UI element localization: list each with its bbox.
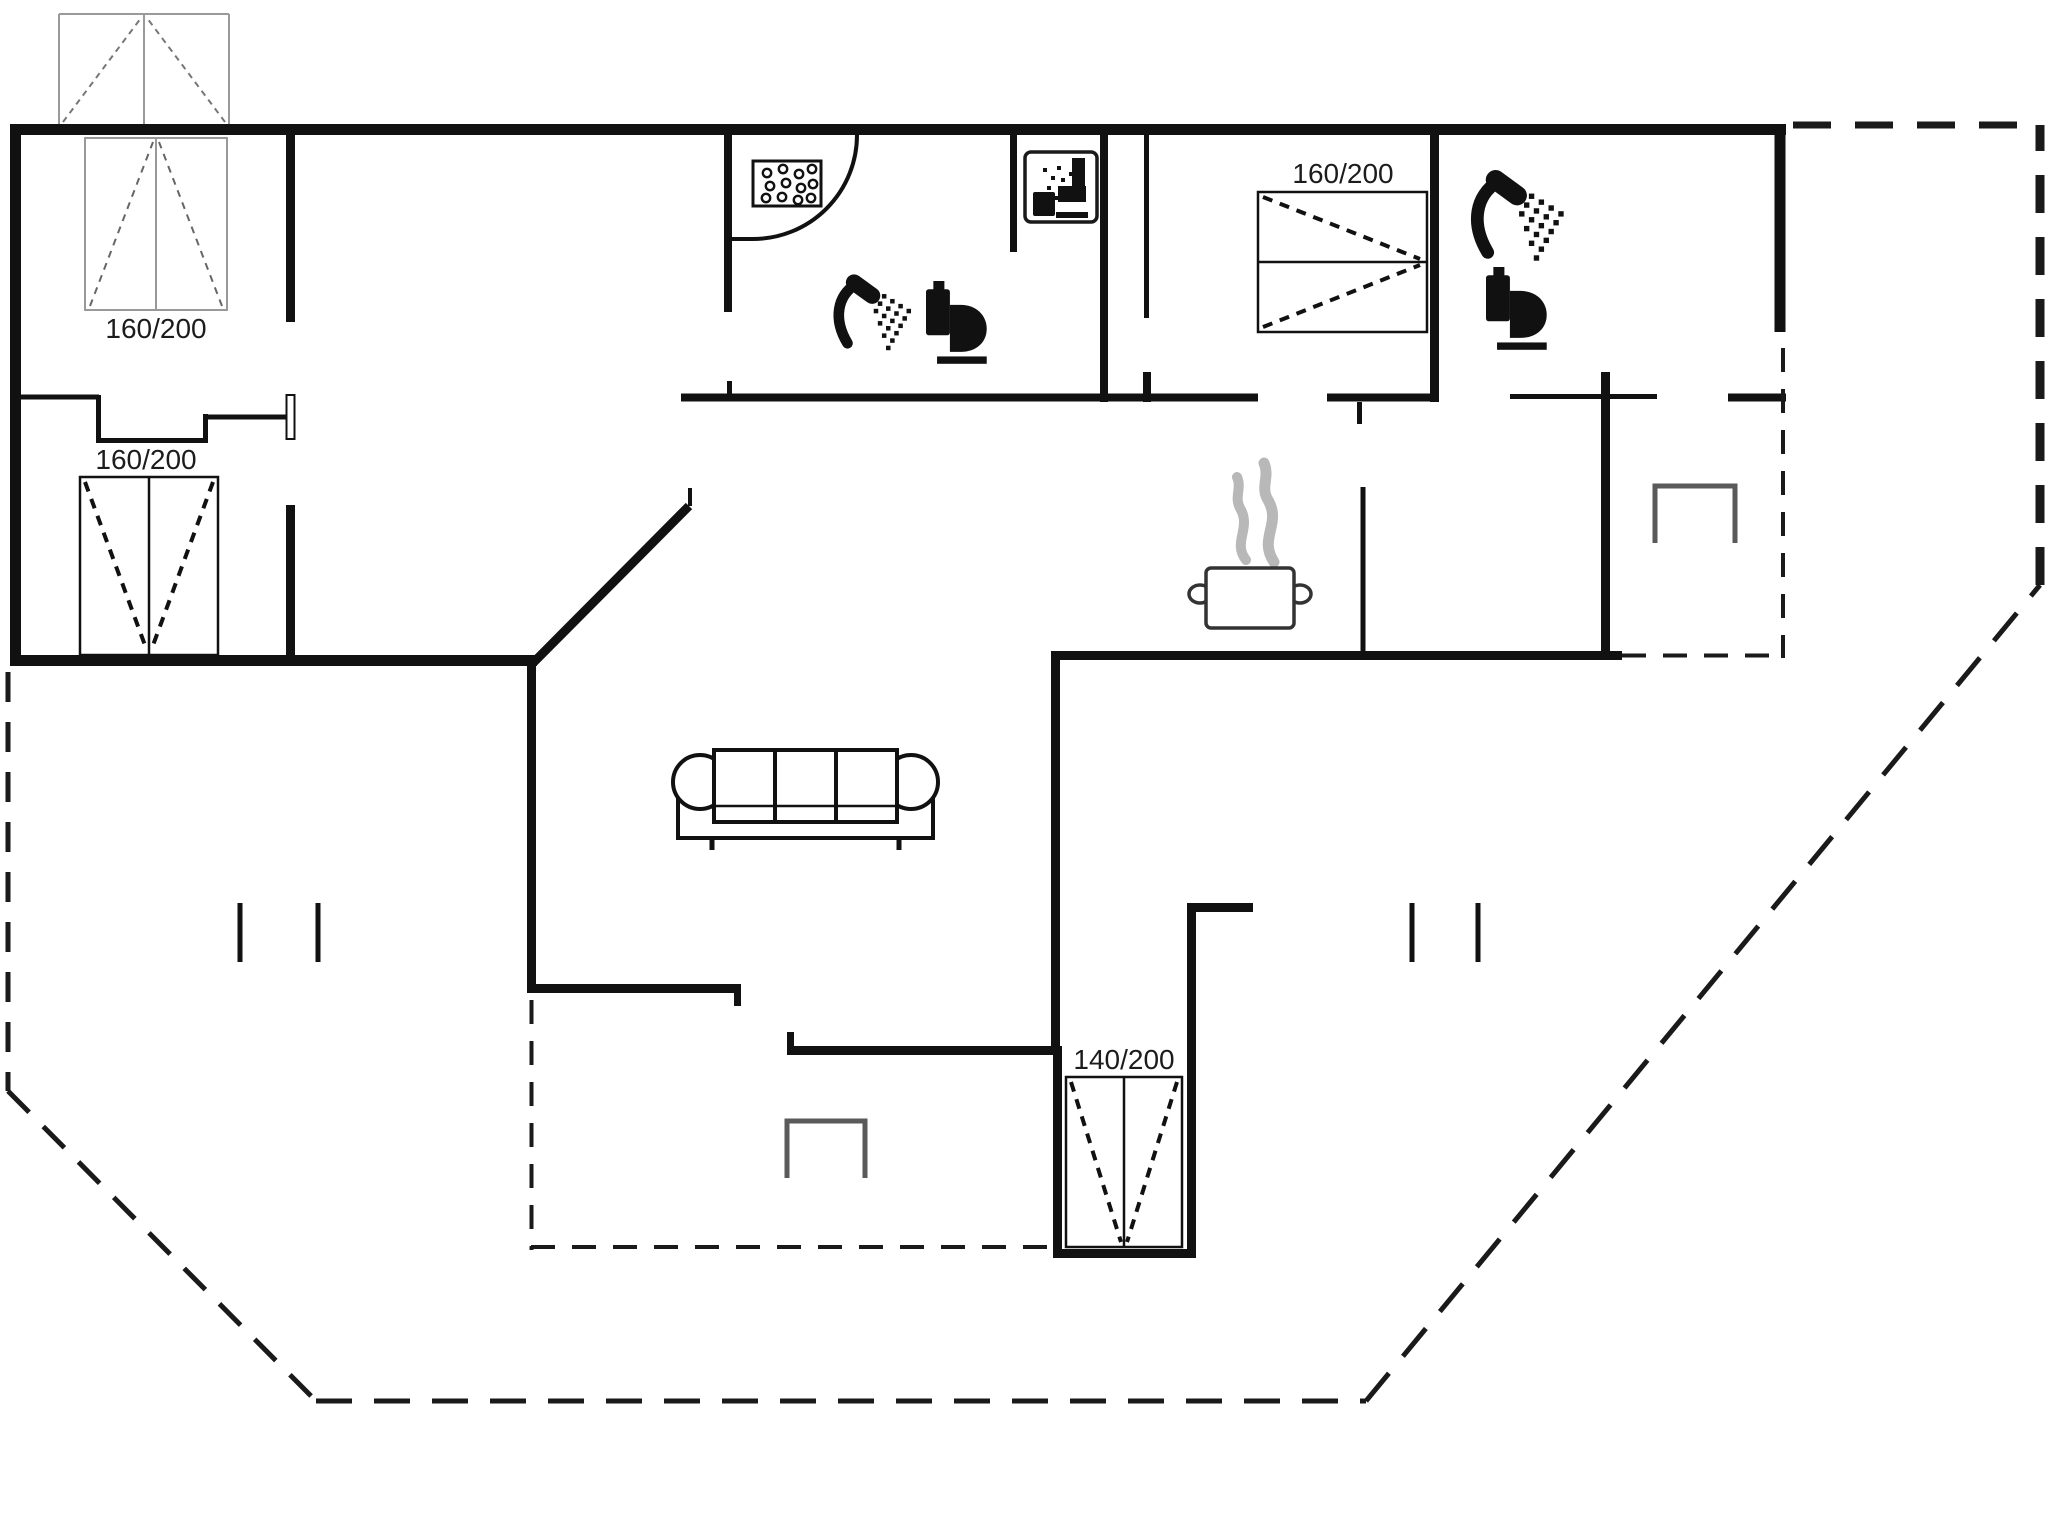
bed-size-label: 140/200 — [1073, 1044, 1174, 1075]
bed-mid-left — [80, 477, 218, 655]
terrace-outline — [8, 125, 2040, 1401]
toilet-icon — [1486, 267, 1547, 350]
toilet-icon — [926, 281, 987, 364]
shower-head-icon — [1477, 180, 1563, 261]
sofa-icon — [673, 750, 938, 850]
dining-table-icon — [787, 1121, 865, 1178]
bed-size-label: 160/200 — [1292, 158, 1393, 189]
bed-top-right — [1258, 192, 1427, 332]
window-bay-symbol — [59, 14, 229, 126]
shower-head-icon — [839, 283, 911, 351]
floor-plan: 160/200 160/200 160/200 140/200 — [0, 0, 2048, 1536]
cooking-pot-icon — [1189, 463, 1311, 628]
shower-cabin-icon — [726, 135, 857, 239]
floor-plan-canvas: 160/200 160/200 160/200 140/200 — [0, 0, 2048, 1536]
bed-size-label: 160/200 — [95, 444, 196, 475]
bed-top-left — [85, 138, 227, 310]
bed-size-label: 160/200 — [105, 313, 206, 344]
bathroom-pictogram-icon — [1025, 152, 1097, 222]
bed-bottom-center — [1066, 1077, 1182, 1247]
terrace-posts — [240, 903, 1478, 962]
dining-table-icon — [1655, 486, 1735, 543]
